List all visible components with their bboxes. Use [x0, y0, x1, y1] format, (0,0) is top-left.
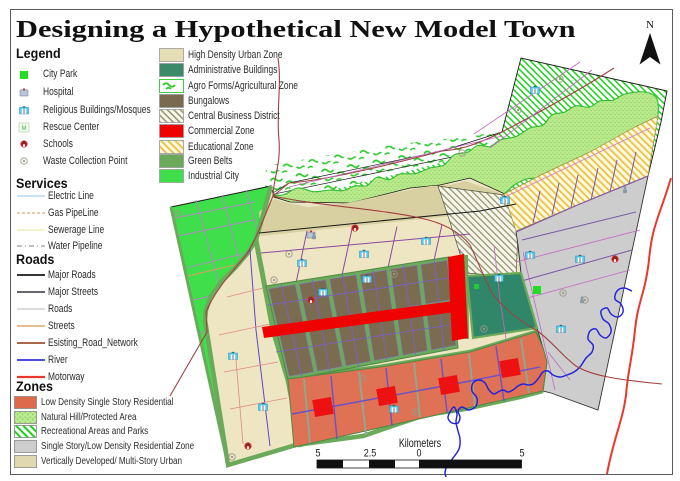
svg-text:M: M	[22, 126, 27, 132]
svg-text:N: N	[646, 19, 654, 31]
svg-text:5: 5	[519, 448, 524, 460]
svg-text:2.5: 2.5	[364, 448, 377, 460]
svg-text:0: 0	[416, 448, 421, 460]
